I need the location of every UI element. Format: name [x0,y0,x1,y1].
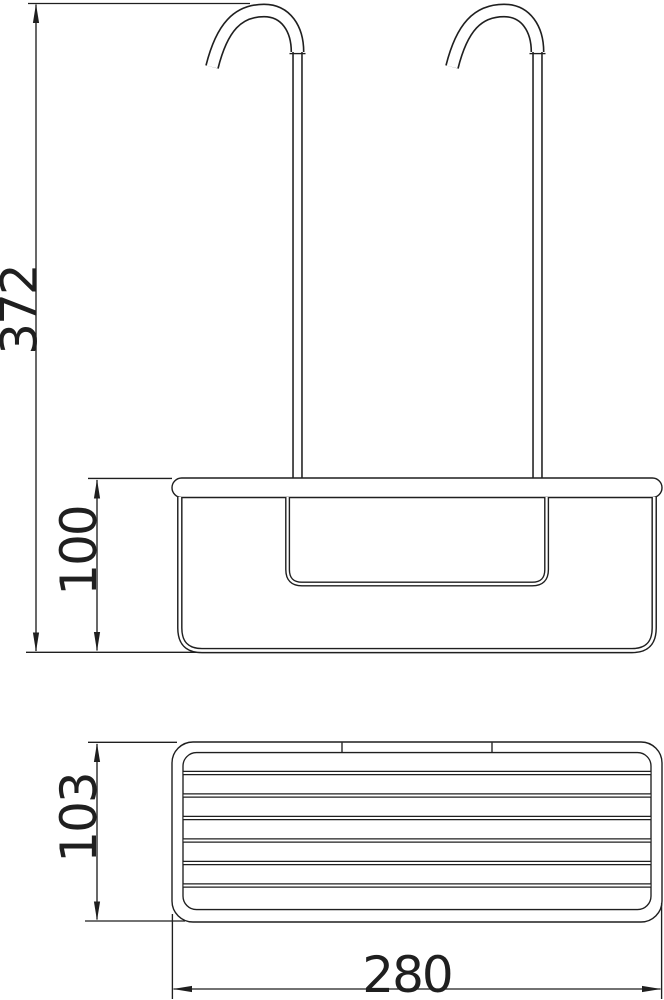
topview-outer-frame [172,742,662,922]
front-view: 372 100 [0,4,662,653]
technical-drawing-svg: 372 100 [0,0,664,1000]
dimension-label-372: 372 [0,265,49,354]
arrowhead-100-top [94,479,100,498]
drawing-canvas: 372 100 [0,0,664,1000]
dimension-label-100: 100 [50,506,108,595]
dimension-basket-height: 100 [50,478,172,651]
hook-left [212,11,306,481]
arrowhead-280-right [642,986,661,992]
basket-recess-fill [288,497,547,584]
arrowhead-103-bottom [94,902,100,921]
arrowhead-100-bottom [94,632,100,651]
basket-rim [172,478,662,498]
arrowhead-103-top [94,743,100,762]
top-view: 103 280 [50,742,662,1000]
arrowhead-280-left [173,986,192,992]
basket-body-outline [180,497,654,651]
arrowhead-372-bottom [33,633,39,652]
basket-body-fill [180,497,654,651]
basket-recess-outline [288,497,547,584]
dimension-label-280: 280 [362,946,451,1000]
hook-left-curve-fill [212,11,298,68]
arrowhead-372-top [33,4,39,23]
dimension-label-103: 103 [50,773,108,862]
basket-front-recess [288,497,547,584]
dimension-total-height: 372 [0,4,49,652]
dimension-basket-depth: 103 [50,742,185,921]
hook-right-curve-fill [452,11,538,68]
basket-body [180,497,654,651]
hook-right [452,11,546,481]
